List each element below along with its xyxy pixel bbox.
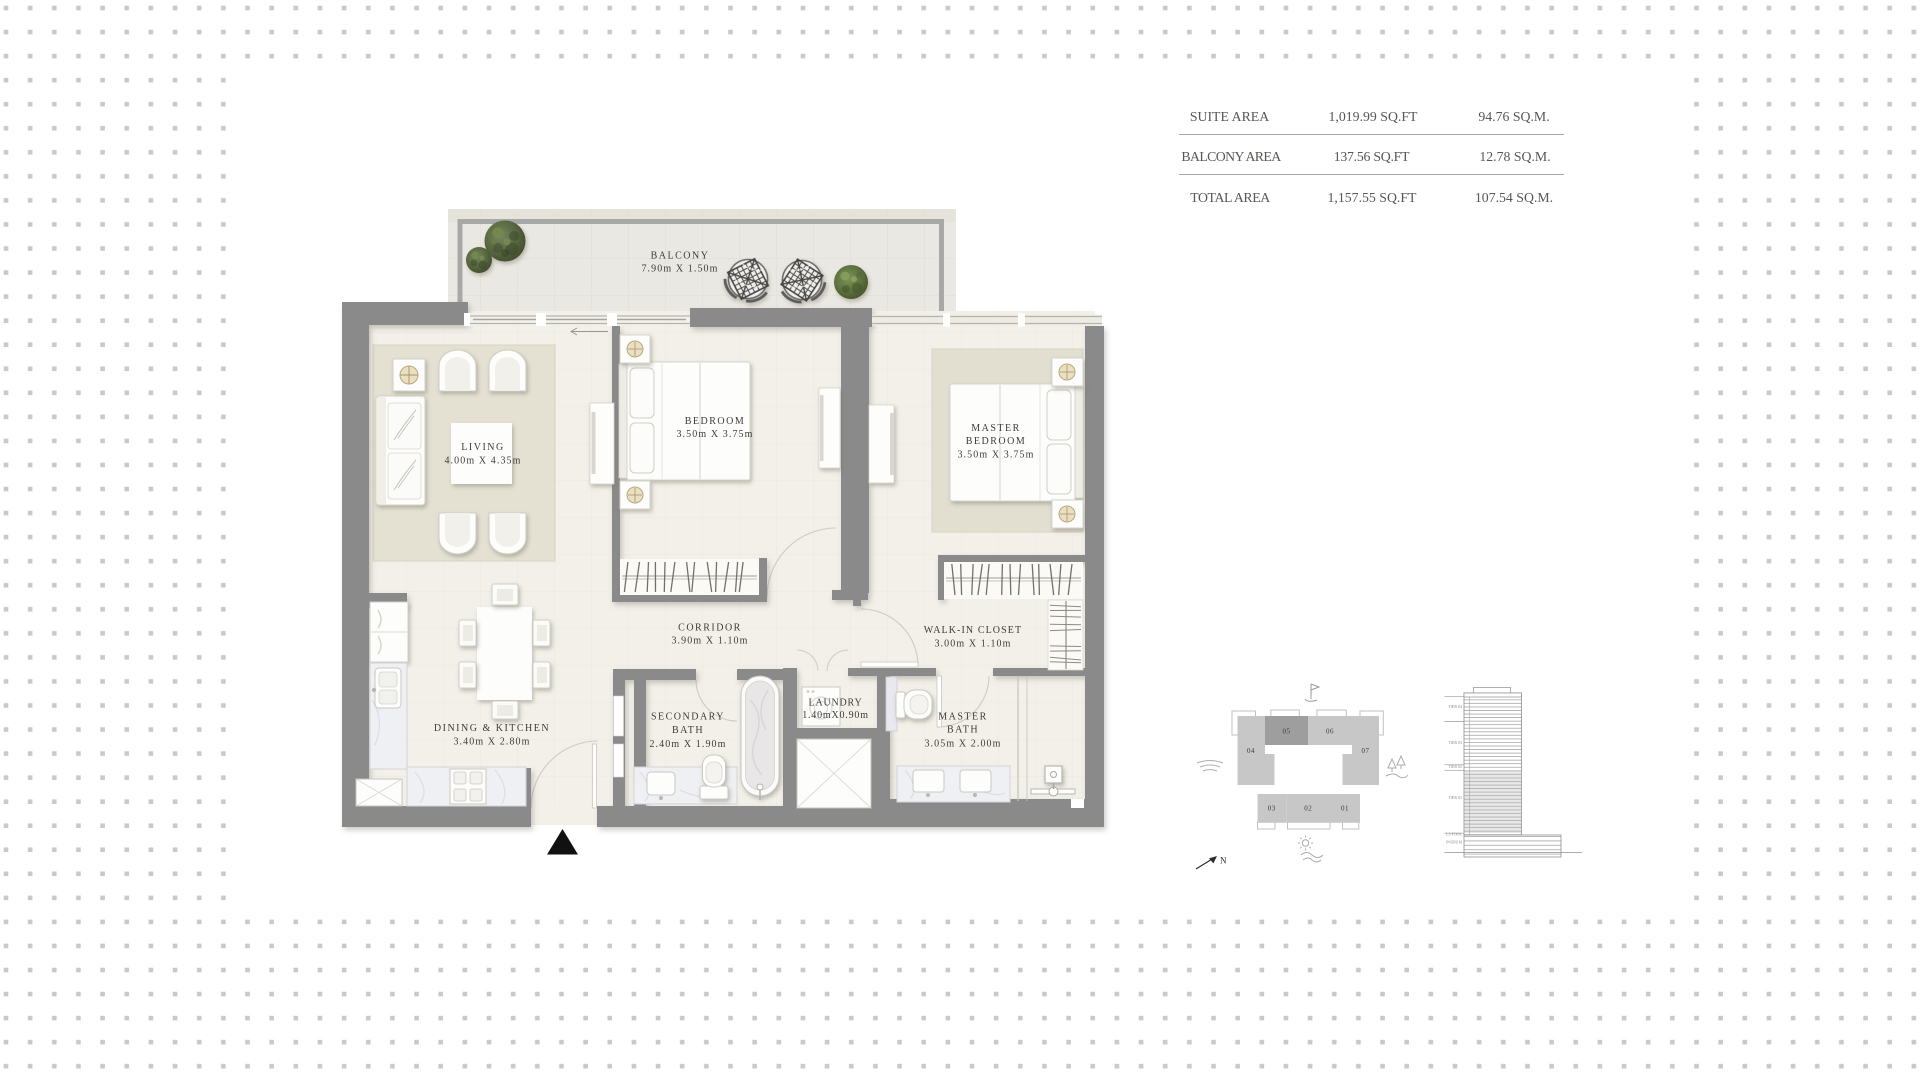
svg-text:3.00m X 1.10m: 3.00m X 1.10m (934, 639, 1011, 650)
svg-text:06: 06 (1326, 728, 1334, 736)
svg-text:02: 02 (1304, 805, 1312, 813)
svg-text:MASTER: MASTER (971, 423, 1021, 434)
svg-text:94.76 SQ.M.: 94.76 SQ.M. (1478, 109, 1549, 124)
svg-text:TIER 04: TIER 04 (1448, 704, 1462, 709)
svg-text:TIER 03: TIER 03 (1448, 740, 1462, 745)
svg-text:07: 07 (1362, 747, 1370, 755)
svg-text:04: 04 (1247, 747, 1255, 755)
svg-text:SUITE AREA: SUITE AREA (1190, 109, 1269, 124)
svg-text:TIER 02: TIER 02 (1448, 764, 1462, 769)
svg-text:7.90m X 1.50m: 7.90m X 1.50m (641, 264, 718, 275)
svg-text:03: 03 (1268, 805, 1276, 813)
svg-text:L3 POOL: L3 POOL (1446, 832, 1462, 837)
svg-text:DINING & KITCHEN: DINING & KITCHEN (434, 723, 550, 734)
svg-text:TOTAL AREA: TOTAL AREA (1190, 190, 1270, 205)
svg-text:12.78 SQ.M.: 12.78 SQ.M. (1479, 149, 1550, 164)
svg-text:1,019.99 SQ.FT: 1,019.99 SQ.FT (1329, 109, 1418, 124)
svg-text:3.05m X 2.00m: 3.05m X 2.00m (924, 739, 1001, 750)
svg-text:BEDROOM: BEDROOM (685, 416, 746, 427)
svg-text:WALK-IN CLOSET: WALK-IN CLOSET (924, 625, 1022, 636)
svg-text:137.56 SQ.FT: 137.56 SQ.FT (1334, 149, 1410, 164)
svg-text:BEDROOM: BEDROOM (966, 436, 1027, 447)
svg-text:TIER 01: TIER 01 (1448, 795, 1462, 800)
svg-text:N: N (1220, 856, 1227, 866)
svg-text:3.50m X 3.75m: 3.50m X 3.75m (676, 429, 753, 440)
svg-text:3.40m X 2.80m: 3.40m X 2.80m (453, 737, 530, 748)
svg-text:MASTER: MASTER (938, 712, 988, 723)
svg-text:05: 05 (1283, 728, 1291, 736)
svg-text:BATH: BATH (947, 725, 979, 736)
svg-text:107.54 SQ.M.: 107.54 SQ.M. (1475, 190, 1553, 205)
svg-text:BALCONY AREA: BALCONY AREA (1181, 149, 1281, 164)
svg-text:3.90m X 1.10m: 3.90m X 1.10m (671, 636, 748, 647)
svg-text:3.50m X 3.75m: 3.50m X 3.75m (957, 450, 1034, 461)
svg-text:SECONDARY: SECONDARY (651, 712, 725, 723)
svg-text:BALCONY: BALCONY (651, 251, 710, 262)
svg-text:CORRIDOR: CORRIDOR (678, 623, 742, 634)
svg-text:2.40m X 1.90m: 2.40m X 1.90m (649, 739, 726, 750)
svg-text:PODIUM: PODIUM (1446, 840, 1462, 845)
svg-text:1,157.55 SQ.FT: 1,157.55 SQ.FT (1328, 190, 1417, 205)
svg-text:01: 01 (1341, 805, 1349, 813)
svg-text:LAUNDRY: LAUNDRY (809, 698, 863, 709)
svg-text:LIVING: LIVING (461, 442, 504, 453)
svg-text:1.40mX0.90m: 1.40mX0.90m (802, 710, 869, 721)
svg-text:4.00m X 4.35m: 4.00m X 4.35m (444, 456, 521, 467)
svg-text:BATH: BATH (672, 725, 704, 736)
